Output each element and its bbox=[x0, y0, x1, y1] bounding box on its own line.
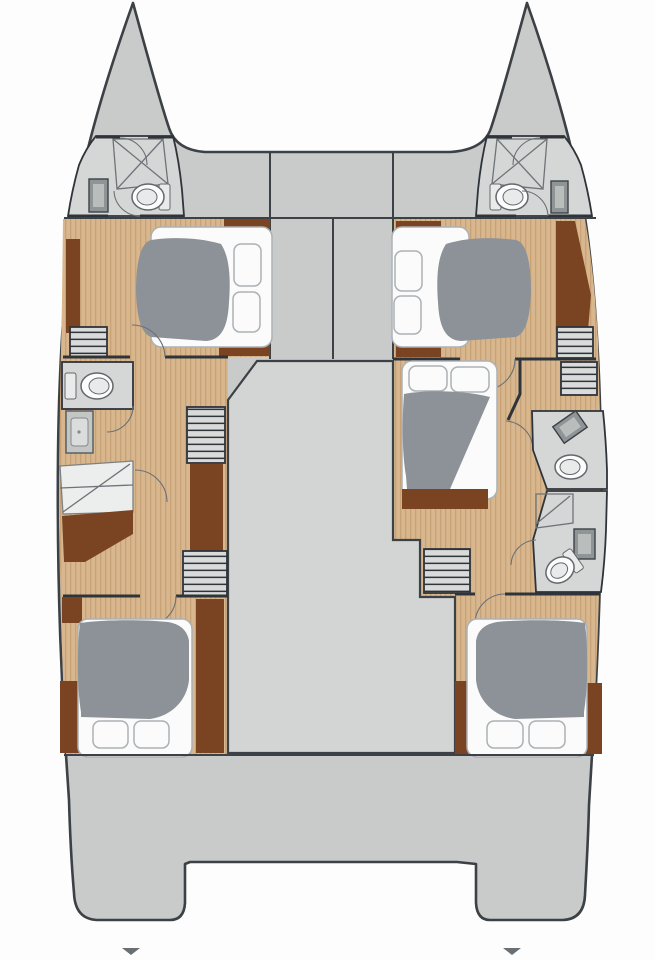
starboard-bow-head bbox=[476, 136, 592, 216]
berth-duvet bbox=[476, 620, 587, 719]
washbasin-icon bbox=[551, 181, 568, 213]
pillow bbox=[395, 251, 422, 291]
shower-icon bbox=[60, 461, 133, 514]
locker-icon bbox=[89, 179, 108, 212]
pillow bbox=[394, 296, 421, 334]
pillow bbox=[529, 721, 565, 748]
pillow bbox=[487, 721, 523, 748]
pillow bbox=[233, 292, 260, 332]
port-mid-steps bbox=[187, 407, 225, 463]
pillow bbox=[409, 366, 447, 391]
berth-duvet bbox=[437, 238, 531, 341]
port-bow-head bbox=[68, 136, 184, 216]
pillow bbox=[234, 244, 261, 286]
pillow bbox=[93, 721, 128, 748]
starboard-mid-steps bbox=[561, 362, 597, 395]
wood-trim bbox=[66, 239, 80, 333]
pillow bbox=[134, 721, 169, 748]
starboard-forward-steps bbox=[557, 327, 593, 358]
toilet-icon bbox=[555, 455, 587, 479]
floor-plan-canvas bbox=[0, 0, 655, 960]
port-aft-cabin bbox=[60, 596, 228, 757]
berth-duvet bbox=[136, 238, 230, 341]
starboard-mid-head bbox=[532, 411, 607, 489]
washbasin-icon bbox=[66, 411, 93, 453]
port-aft-steps bbox=[183, 551, 227, 596]
toilet-icon bbox=[65, 373, 113, 399]
washbasin-icon bbox=[574, 529, 595, 559]
starboard-transom-mark bbox=[503, 948, 521, 955]
berth-footboard bbox=[402, 489, 488, 509]
floor-plan bbox=[0, 0, 655, 960]
toilet-icon bbox=[132, 184, 170, 210]
pillow bbox=[451, 367, 489, 392]
starboard-aft-steps bbox=[424, 549, 470, 593]
wood-trim bbox=[62, 597, 82, 623]
port-forward-steps bbox=[70, 327, 107, 357]
wood-trim bbox=[196, 599, 224, 753]
berth-duvet bbox=[78, 620, 189, 719]
port-transom-mark bbox=[122, 948, 140, 955]
toilet-icon bbox=[490, 184, 528, 210]
wood-trim bbox=[190, 464, 223, 552]
wood-trim bbox=[60, 681, 80, 753]
